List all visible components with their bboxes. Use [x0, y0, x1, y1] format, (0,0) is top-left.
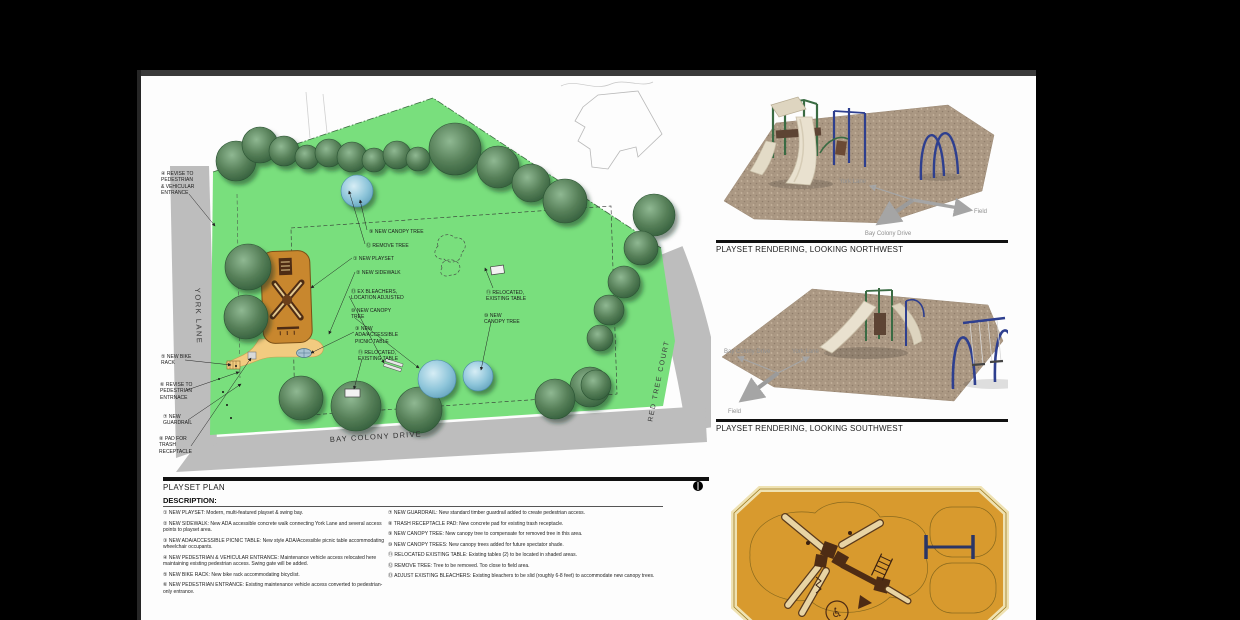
- description-item-9: ⑨ NEW CANOPY TREE: New canopy tree to co…: [388, 531, 678, 538]
- description-item-5: ⑤ NEW BIKE RACK: New bike rack accommoda…: [163, 572, 385, 579]
- plan-sheet-page: YORK LANE BAY COLONY DRIVE RED TREE COUR…: [141, 76, 1036, 620]
- compass-label-field: Field: [728, 409, 741, 415]
- compass-label-york-lane: York Lane: [792, 349, 819, 355]
- description-item-3: ③ NEW ADA/ACCESSIBLE PICNIC TABLE: New s…: [163, 538, 385, 551]
- plan-callout-2: ② NEW SIDEWALK: [356, 270, 401, 276]
- description-item-6: ⑥ NEW PEDESTRIAN ENTRANCE: Existing main…: [163, 582, 385, 595]
- playset-detail-plan: ♿: [730, 485, 1010, 620]
- rendering-2-caption: PLAYSET RENDERING, LOOKING SOUTHWEST: [716, 424, 903, 433]
- rendering-2-rule: [716, 419, 1008, 422]
- plan-callout-13: ⑬ EX BLEACHERS, LOCATION ADJUSTED: [351, 289, 404, 302]
- image-viewer-background: YORK LANE BAY COLONY DRIVE RED TREE COUR…: [0, 0, 1240, 620]
- description-item-7: ⑦ NEW GUARDRAIL: New standard timber gua…: [388, 510, 678, 517]
- relocated-table-icon-2: [491, 265, 505, 275]
- site-plan-drawing: YORK LANE BAY COLONY DRIVE RED TREE COUR…: [141, 76, 711, 478]
- trash-receptacle-pad: [248, 352, 256, 359]
- safety-surface-area: [734, 489, 1006, 620]
- description-section: DESCRIPTION: ① NEW PLAYSET: Modern, mult…: [163, 496, 709, 507]
- description-column-left: ① NEW PLAYSET: Modern, multi-featured pl…: [163, 510, 385, 599]
- playset-rendering-northwest: York Lane Field Bay Colony Drive: [716, 83, 998, 239]
- plan-callout-9: ⑨ NEW CANOPY TREE: [369, 229, 424, 235]
- rendering-1-caption: PLAYSET RENDERING, LOOKING NORTHWEST: [716, 245, 903, 254]
- compass-label-bay-colony: Bay Colony Drive: [865, 231, 912, 237]
- relocated-table-icon: [345, 389, 360, 397]
- compass-label-bay-colony: Bay Colony Drive: [724, 349, 771, 355]
- description-item-11: ⑪ RELOCATED EXISTING TABLE: Existing tab…: [388, 552, 678, 559]
- description-column-right: ⑦ NEW GUARDRAIL: New standard timber gua…: [388, 510, 678, 584]
- plan-callout-4: ④ REVISE TO PEDESTRIAN & VEHICULAR ENTRA…: [161, 171, 194, 196]
- survey-squiggle: [561, 82, 653, 87]
- rendering-1-rule: [716, 240, 1008, 243]
- plan-callout-3: ③ NEW ADA/ACCESSIBLE PICNIC TABLE: [355, 326, 398, 345]
- description-item-10: ⑩ NEW CANOPY TREES: New canopy trees add…: [388, 542, 678, 549]
- compass-label-field: Field: [974, 209, 987, 215]
- plan-callout-12: ⑫ REMOVE TREE: [366, 243, 409, 249]
- plan-title: PLAYSET PLAN: [163, 483, 225, 492]
- description-rule: [163, 506, 663, 507]
- compass-label-york-lane: York Lane: [839, 179, 866, 185]
- plan-title-rule: [163, 477, 709, 481]
- plan-callout-11: ⑪ RELOCATED, EXISTING TABLE: [358, 350, 398, 363]
- description-heading: DESCRIPTION:: [163, 496, 709, 505]
- north-arrow-icon: [693, 481, 703, 491]
- plan-callout-10: ⑩ NEW CANOPY TREE: [484, 313, 520, 326]
- plan-callout-7: ⑦ NEW GUARDRAIL: [163, 414, 192, 427]
- description-item-8: ⑧ TRASH RECEPTACLE PAD: New concrete pad…: [388, 521, 678, 528]
- plan-callout-6: ⑥ REVISE TO PEDESTRIAN ENTRNACE: [160, 382, 192, 401]
- wheelchair-icon: ♿: [831, 605, 843, 620]
- plan-callout-10: ⑩ NEW CANOPY TREE: [351, 308, 391, 321]
- plan-callout-11: ⑪ RELOCATED, EXISTING TABLE: [486, 290, 526, 303]
- description-item-12: ⑫ REMOVE TREE: Tree to be removed. Too c…: [388, 563, 678, 570]
- description-item-4: ④ NEW PEDESTRIAN & VEHICULAR ENTRANCE: M…: [163, 555, 385, 568]
- description-item-13: ⑬ ADJUST EXISTING BLEACHERS: Existing bl…: [388, 573, 678, 580]
- description-item-1: ① NEW PLAYSET: Modern, multi-featured pl…: [163, 510, 385, 517]
- description-item-2: ② NEW SIDEWALK: New ADA accessible concr…: [163, 521, 385, 534]
- plan-callout-1: ① NEW PLAYSET: [353, 256, 394, 262]
- plan-callout-5: ⑤ NEW BIKE RACK: [161, 354, 191, 367]
- plan-callout-8: ⑧ PAD FOR TRASH RECEPTACLE: [159, 436, 192, 455]
- playset-rendering-southwest: Bay Colony Drive York Lane Field: [716, 261, 1008, 419]
- building-outline: [575, 91, 662, 169]
